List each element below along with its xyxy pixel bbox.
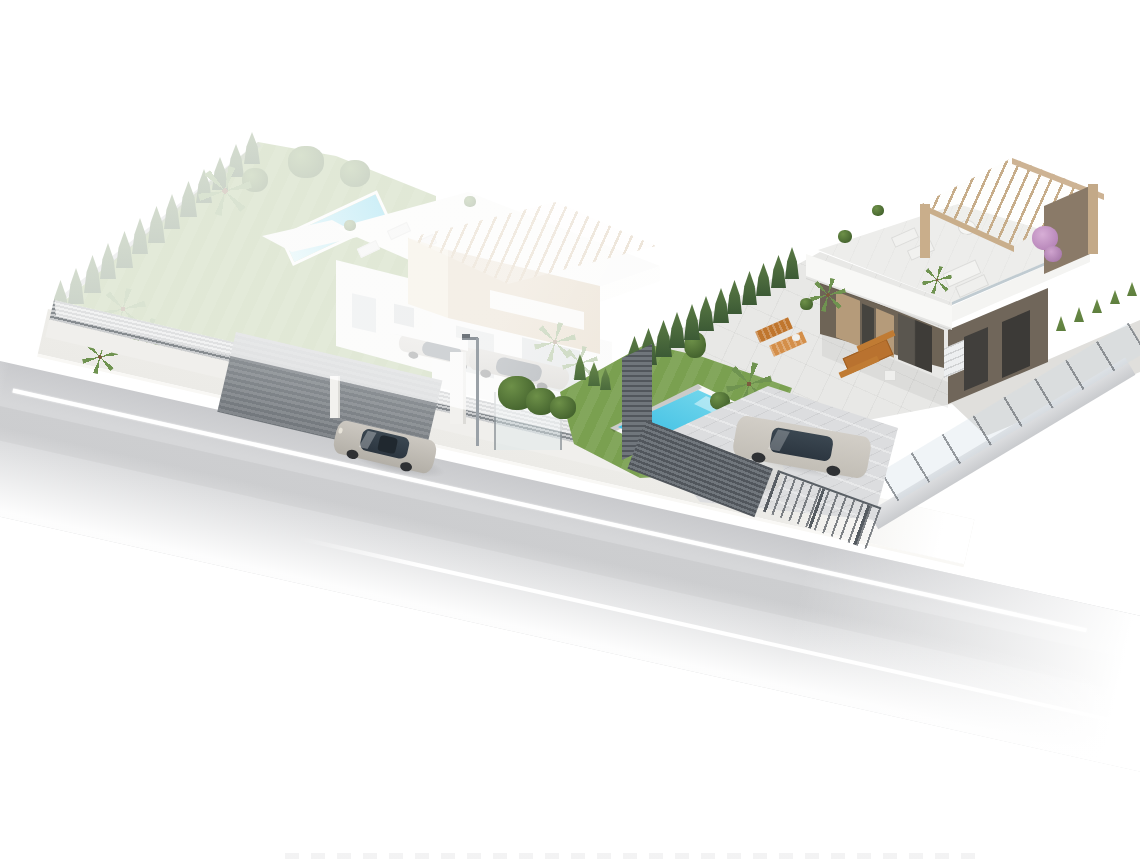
- hedge-plant: [1038, 325, 1048, 340]
- roof-chair: [962, 234, 968, 239]
- hedge-plant: [1074, 307, 1084, 322]
- cypress-tree: [640, 328, 657, 365]
- right-property: [0, 0, 1140, 860]
- cypress-tree: [742, 271, 757, 305]
- architectural-render: [0, 0, 1140, 860]
- white-chair: [884, 370, 896, 381]
- pergola-column: [920, 204, 930, 258]
- hedge-plant: [1110, 290, 1120, 304]
- cypress-tree: [669, 312, 685, 348]
- dark-door: [964, 327, 988, 391]
- palm-tree: [810, 278, 846, 312]
- cypress-tree: [626, 336, 643, 374]
- roof-chair: [950, 218, 956, 223]
- glass-sliding-door: [898, 313, 932, 373]
- hedge-plant: [1056, 316, 1066, 331]
- roof-sun-lounger: [891, 227, 919, 248]
- hedge-plant: [1127, 282, 1137, 296]
- palm-tree: [726, 362, 772, 406]
- lamp-head: [462, 334, 470, 338]
- cypress-tree: [684, 304, 700, 340]
- cypress-tree: [727, 280, 742, 314]
- roof-potted-plant: [872, 205, 884, 216]
- cypress-tree: [698, 296, 714, 331]
- roof-potted-palm: [922, 266, 952, 294]
- bougainvillea-plant: [1044, 246, 1062, 262]
- watermark-artifact: [285, 853, 985, 859]
- side-table: [792, 334, 800, 341]
- potted-plant: [800, 298, 813, 310]
- cypress-tree: [756, 263, 771, 296]
- cypress-tree: [785, 247, 799, 279]
- dark-door: [1002, 310, 1030, 378]
- roof-potted-plant: [838, 230, 852, 243]
- cypress-tree: [600, 368, 611, 390]
- roof-chair: [976, 222, 982, 227]
- lamp-pole: [476, 338, 479, 446]
- roof-round-table: [958, 220, 976, 235]
- cypress-tree: [655, 320, 672, 357]
- cypress-tree: [574, 354, 586, 380]
- right-boundary-wall: [868, 357, 1135, 529]
- cypress-tree: [588, 362, 600, 386]
- pergola-edge-board: [1088, 184, 1098, 254]
- cypress-tree: [771, 255, 786, 288]
- garden-bush: [550, 396, 576, 419]
- cypress-tree: [713, 288, 729, 323]
- hedge-plant: [1092, 299, 1102, 313]
- side-steps: [944, 340, 964, 378]
